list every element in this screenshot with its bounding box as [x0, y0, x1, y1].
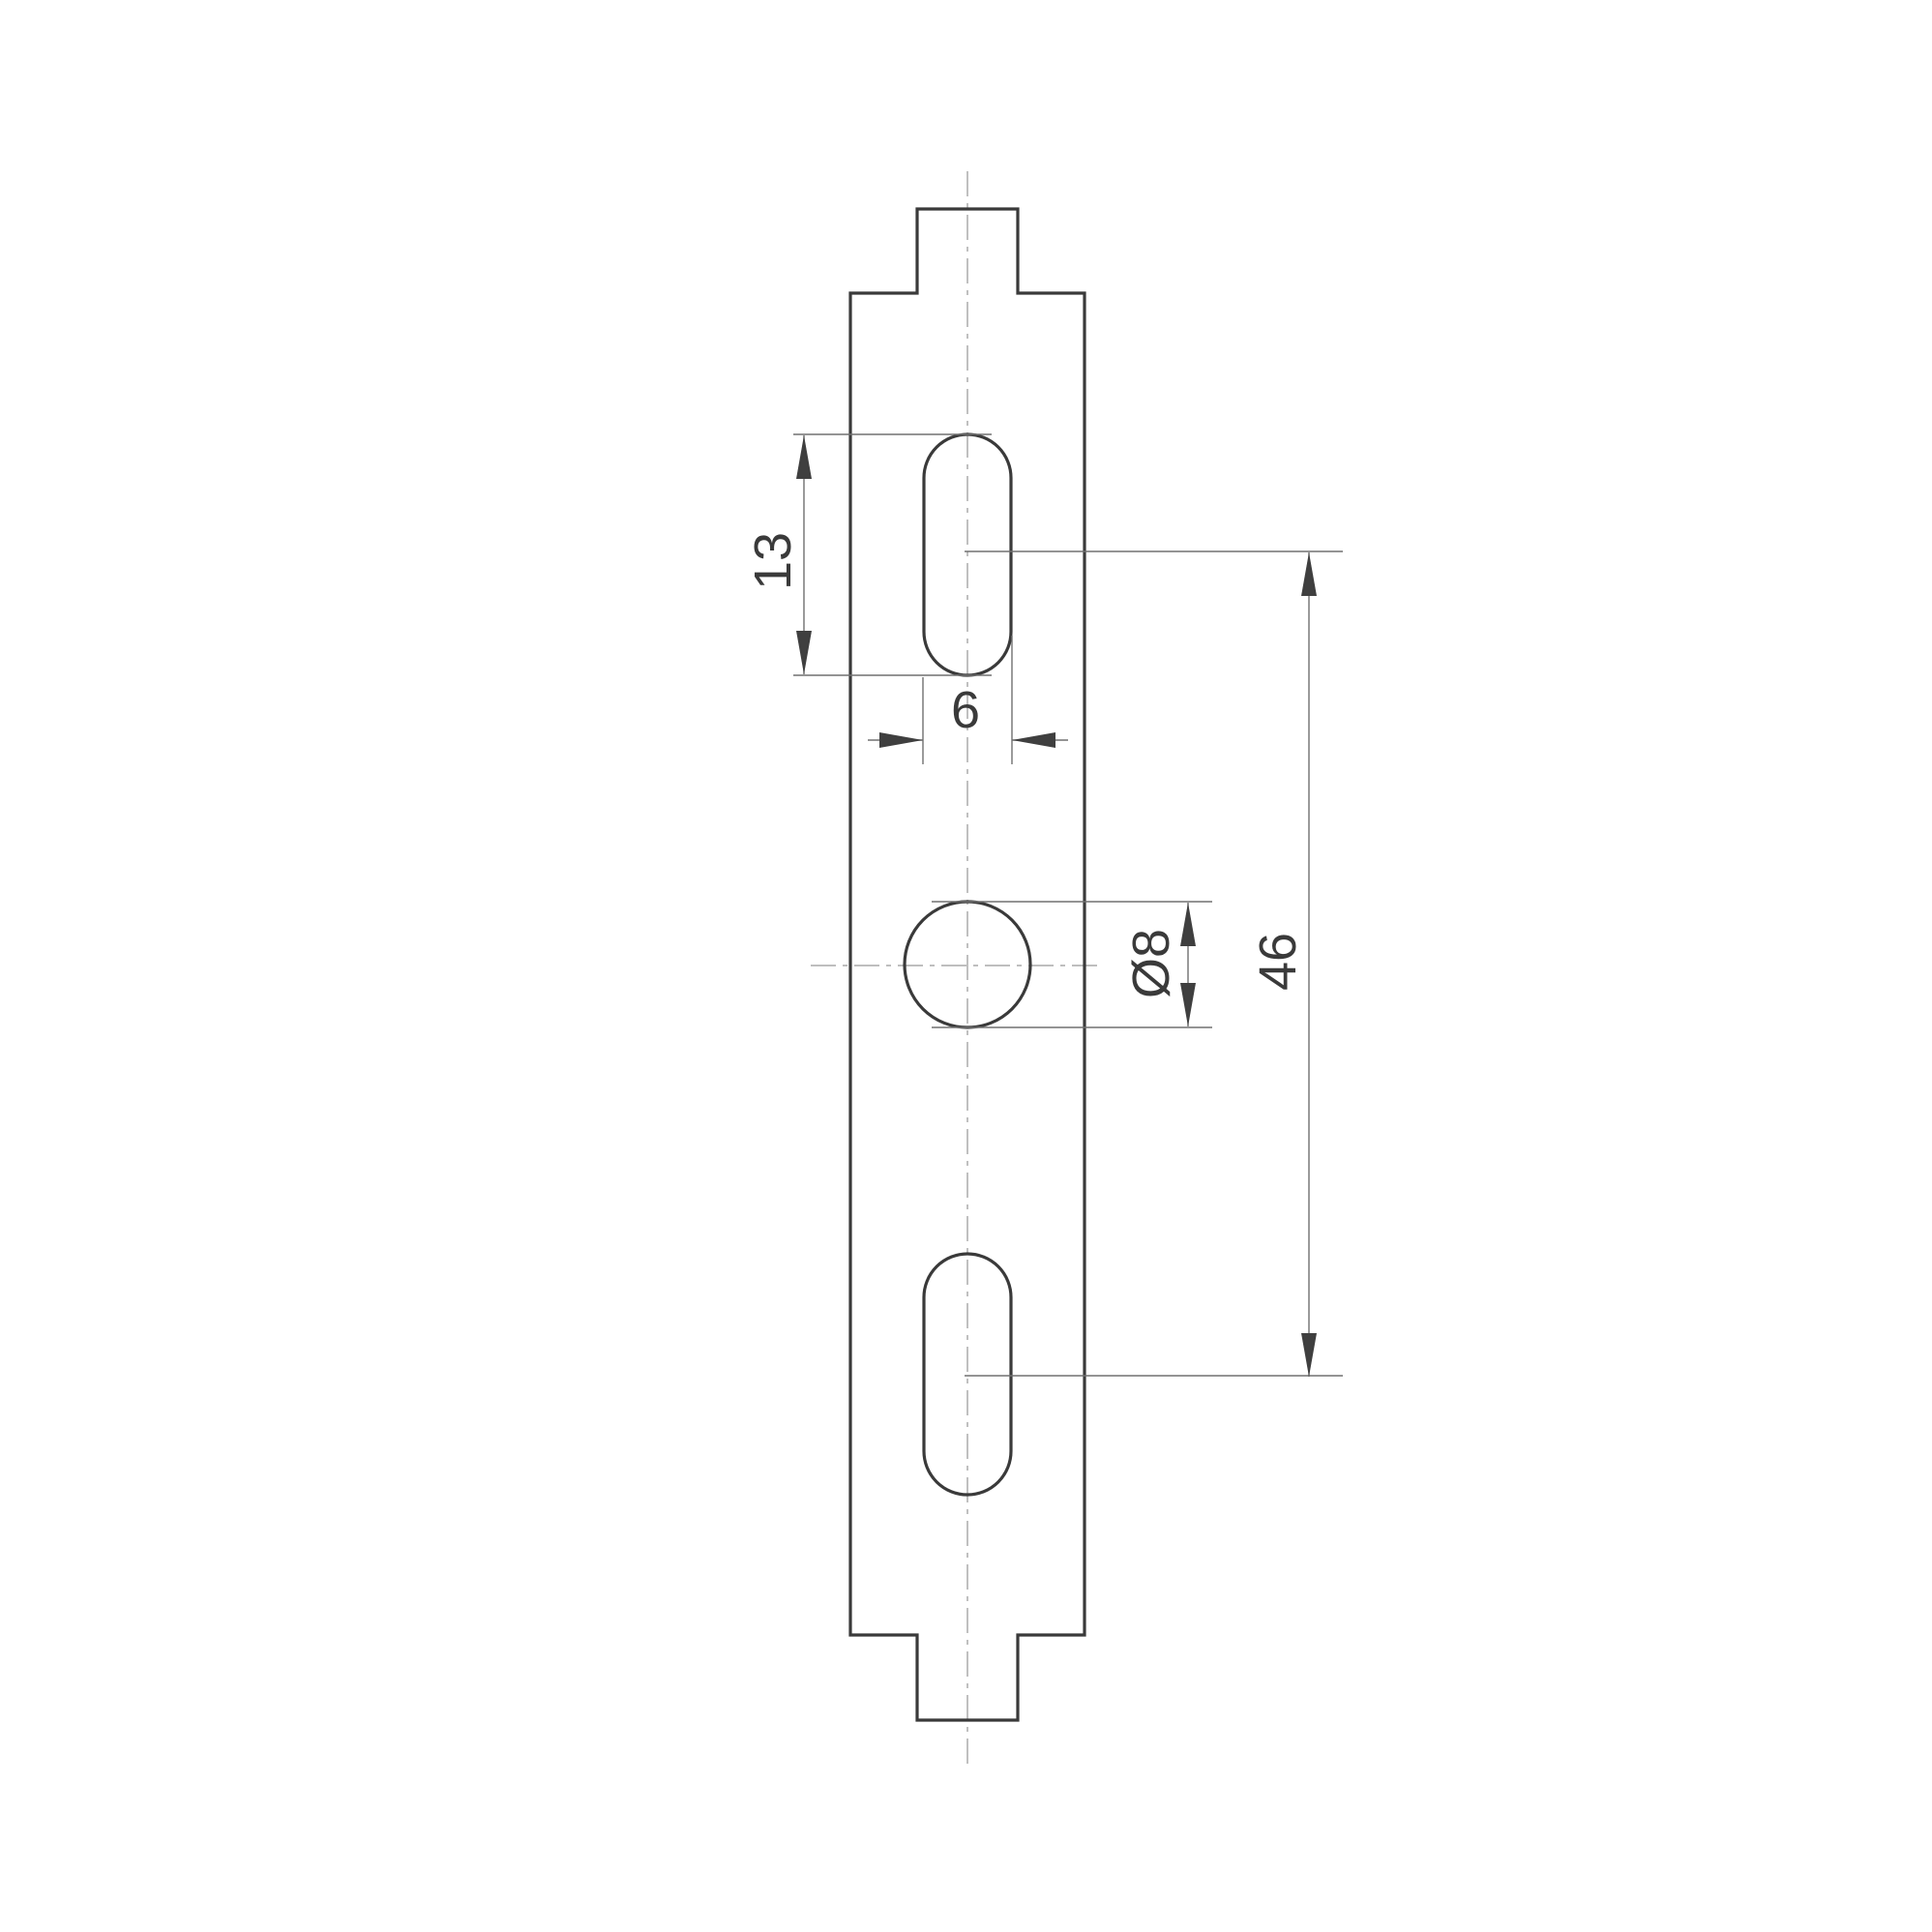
slot-width-arrow-right-icon: [879, 732, 923, 748]
slot-length-arrow-down-icon: [796, 631, 812, 674]
dim-hole-diameter: Ø8: [932, 902, 1212, 1027]
technical-drawing-canvas: 13 6 Ø8 46: [0, 0, 1932, 1932]
slot-length-arrow-up-icon: [796, 435, 812, 479]
hole-diameter-arrow-up-icon: [1180, 903, 1196, 946]
slot-width-arrow-left-icon: [1012, 732, 1055, 748]
slot-length-value: 13: [744, 532, 802, 590]
slot-spacing-arrow-down-icon: [1301, 1333, 1317, 1377]
slot-spacing-arrow-up-icon: [1301, 552, 1317, 596]
slot-spacing-value: 46: [1249, 933, 1307, 991]
centerlines: [811, 171, 1103, 1767]
hole-diameter-arrow-down-icon: [1180, 983, 1196, 1026]
slot-width-value: 6: [951, 681, 980, 739]
hole-diameter-value: Ø8: [1122, 929, 1180, 998]
mounting-plate-side-view: 13 6 Ø8 46: [0, 0, 1932, 1932]
dim-slot-length: 13: [744, 434, 992, 675]
